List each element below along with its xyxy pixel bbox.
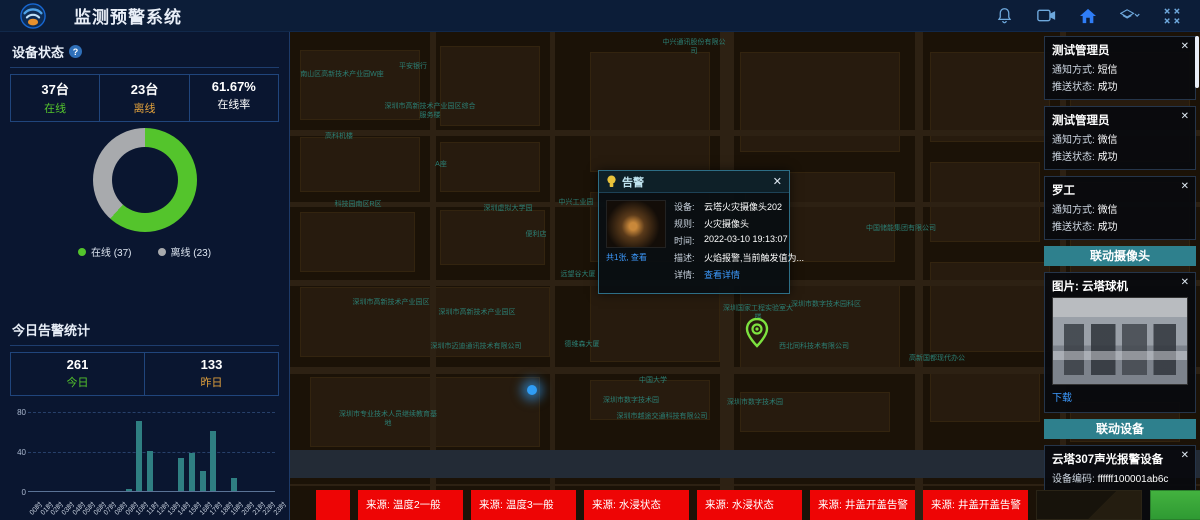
notification-recipient: 测试管理员 — [1052, 112, 1188, 128]
donut-chart — [93, 128, 197, 232]
header-icon-bar — [994, 7, 1182, 25]
map-place-label: 深圳市专业技术人员继续教育基地 — [336, 410, 440, 429]
stat-value: 23台 — [100, 79, 188, 98]
layers-icon[interactable] — [1120, 7, 1140, 25]
ticker-alert-item[interactable]: 来源: 温度2一般 — [358, 490, 463, 520]
today-alert-stats: 261今日133昨日 — [10, 352, 279, 396]
y-axis-tick: 40 — [12, 448, 26, 457]
bar — [210, 431, 216, 491]
bar — [126, 489, 132, 491]
legend-dot-icon — [78, 248, 86, 256]
close-icon[interactable]: ✕ — [1181, 450, 1189, 461]
device-donut-chart: 在线 (37)离线 (23) — [10, 128, 279, 278]
map-building — [930, 52, 1050, 142]
map-building — [590, 282, 720, 362]
stat-label: 今日 — [11, 374, 144, 390]
donut-legend: 在线 (37)离线 (23) — [10, 244, 279, 259]
alert-detail-row: 规则:火灾摄像头 — [674, 217, 804, 230]
map-building — [300, 212, 415, 272]
fullscreen-icon[interactable] — [1162, 7, 1182, 25]
donut-legend-item: 离线 (23) — [158, 244, 212, 259]
right-alert-panel: 测试管理员✕通知方式: 短信推送状态: 成功测试管理员✕通知方式: 微信推送状态… — [1044, 36, 1196, 520]
alarm-bulb-icon — [606, 175, 617, 188]
notification-card: 测试管理员✕通知方式: 微信推送状态: 成功 — [1044, 106, 1196, 170]
map-place-label: 深圳市数字技术园科区 — [788, 300, 864, 309]
map-place-label: 便利店 — [516, 230, 556, 239]
detail-label: 描述: — [674, 251, 704, 264]
stat-label: 昨日 — [145, 374, 278, 390]
map-pin-icon[interactable] — [745, 318, 769, 353]
detail-label: 设备: — [674, 200, 704, 213]
map-device-dot[interactable] — [527, 385, 537, 395]
linked-camera-header[interactable]: 联动摄像头 — [1044, 246, 1196, 266]
card-row: 通知方式: 微信 — [1052, 201, 1188, 216]
y-axis-tick: 0 — [12, 488, 26, 497]
bell-icon[interactable] — [994, 7, 1014, 25]
download-link[interactable]: 下载 — [1052, 389, 1072, 404]
stat-label: 在线 — [11, 100, 99, 116]
help-icon[interactable]: ? — [69, 45, 82, 58]
ticker-alert-item[interactable]: 来源: 井盖开盖告警 — [810, 490, 915, 520]
alert-detail-rows: 设备:云塔火灾摄像头202规则:火灾摄像头时间:2022-03-10 19:13… — [674, 200, 804, 285]
card-row: 通知方式: 短信 — [1052, 61, 1188, 76]
map-building — [930, 262, 1050, 352]
device-card-title: 云塔307声光报警设备 — [1052, 451, 1188, 467]
alert-popup: 告警 ✕ 共1张, 查看 设备:云塔火灾摄像头202规则:火灾摄像头时间:202… — [598, 170, 790, 294]
legend-dot-icon — [158, 248, 166, 256]
stat-cell: 37台在线 — [11, 75, 100, 121]
stat-cell: 133昨日 — [145, 353, 278, 395]
map-place-label: 深圳市数字技术园 — [586, 396, 676, 405]
ticker-green-thumbnail[interactable] — [1150, 490, 1200, 520]
y-axis-tick: 80 — [12, 408, 26, 417]
hourly-alert-bar-chart: 04080 00时01时02时03时04时05时06时07时08时09时10时1… — [10, 404, 279, 520]
close-icon[interactable]: ✕ — [1181, 41, 1189, 52]
device-status-stats: 37台在线23台离线61.67%在线率 — [10, 74, 279, 122]
map-place-label: 中兴工业园 — [546, 198, 606, 207]
alert-thumbnail-wrap: 共1张, 查看 — [606, 200, 666, 285]
legend-label: 在线 (37) — [91, 244, 132, 259]
stat-value: 133 — [145, 357, 278, 372]
map-place-label: 西北同科技术有限公司 — [778, 342, 850, 351]
card-row: 推送状态: 成功 — [1052, 78, 1188, 93]
thumbnail-caption-link[interactable]: 共1张, 查看 — [606, 252, 666, 263]
right-panel-scrollbar[interactable] — [1195, 36, 1199, 88]
notification-recipient: 罗工 — [1052, 182, 1188, 198]
camera-icon[interactable] — [1036, 7, 1056, 25]
map-place-label: 深圳市迈迪通讯技术有限公司 — [430, 342, 522, 351]
view-details-link[interactable]: 查看详情 — [704, 268, 740, 281]
detail-label: 规则: — [674, 217, 704, 230]
map-road — [915, 32, 923, 520]
stat-label: 在线率 — [190, 96, 278, 112]
camera-card: 图片: 云塔球机✕下载 — [1044, 272, 1196, 413]
app-logo-icon — [20, 3, 46, 29]
ticker-camera-thumbnail[interactable] — [1036, 490, 1142, 520]
map-place-label: 南山区高新技术产业园W座 — [300, 70, 384, 79]
alert-popup-title: 告警 — [622, 174, 644, 190]
map-place-label: 德维森大厦 — [552, 340, 612, 349]
detail-value: 云塔火灾摄像头202 — [704, 200, 782, 213]
ticker-alert-item[interactable]: 来源: 温度3一般 — [471, 490, 576, 520]
linked-device-header[interactable]: 联动设备 — [1044, 419, 1196, 439]
device-status-header: 设备状态 ? — [10, 38, 279, 68]
detail-value: 2022-03-10 19:13:07 — [704, 234, 788, 247]
alert-popup-header: 告警 ✕ — [599, 171, 789, 193]
map-place-label: 深圳市高新技术产业园区 — [438, 308, 516, 317]
device-status-title: 设备状态 — [12, 42, 64, 61]
bar — [231, 478, 237, 491]
map-place-label: 深圳市高新技术产业园区 — [352, 298, 430, 307]
legend-label: 离线 (23) — [171, 244, 212, 259]
alert-detail-row: 详情:查看详情 — [674, 268, 804, 281]
alert-detail-row: 描述:火焰报警,当前触发值为... — [674, 251, 804, 264]
donut-legend-item: 在线 (37) — [78, 244, 132, 259]
notification-recipient: 测试管理员 — [1052, 42, 1188, 58]
stat-value: 37台 — [11, 79, 99, 98]
detail-label: 时间: — [674, 234, 704, 247]
stat-value: 61.67% — [190, 79, 278, 94]
stat-cell: 23台离线 — [100, 75, 189, 121]
fire-snapshot-image[interactable] — [606, 200, 666, 248]
map-place-label: 高科机楼 — [314, 132, 364, 141]
map-place-label: 中国储能集团有限公司 — [866, 224, 936, 233]
map-building — [930, 372, 1040, 422]
map-place-label: 深圳市数字技术园 — [710, 398, 800, 407]
camera-snapshot-image[interactable] — [1052, 297, 1188, 385]
card-row: 通知方式: 微信 — [1052, 131, 1188, 146]
stat-cell: 61.67%在线率 — [190, 75, 278, 121]
stat-label: 离线 — [100, 100, 188, 116]
notification-card: 罗工✕通知方式: 微信推送状态: 成功 — [1044, 176, 1196, 240]
map-place-label: A座 — [426, 160, 456, 169]
map-building — [740, 52, 900, 152]
card-row: 推送状态: 成功 — [1052, 148, 1188, 163]
alert-detail-row: 时间:2022-03-10 19:13:07 — [674, 234, 804, 247]
ticker-alert-item[interactable] — [316, 490, 350, 520]
close-icon[interactable]: ✕ — [773, 175, 782, 188]
detail-value: 火灾摄像头 — [704, 217, 749, 230]
close-icon[interactable]: ✕ — [1181, 111, 1189, 122]
alert-detail-row: 设备:云塔火灾摄像头202 — [674, 200, 804, 213]
detail-label: 详情: — [674, 268, 704, 281]
ticker-alert-item[interactable]: 来源: 井盖开盖告警 — [923, 490, 1028, 520]
card-row: 设备编码: ffffff100001ab6c — [1052, 470, 1188, 485]
bar — [200, 471, 206, 491]
close-icon[interactable]: ✕ — [1181, 181, 1189, 192]
camera-card-title: 图片: 云塔球机 — [1052, 278, 1188, 294]
stat-value: 261 — [11, 357, 144, 372]
app-header: 监测预警系统 — [0, 0, 1200, 32]
close-icon[interactable]: ✕ — [1181, 277, 1189, 288]
bar — [147, 451, 153, 491]
map-building — [590, 52, 710, 172]
map-place-label: 平安银行 — [388, 62, 438, 71]
card-row: 推送状态: 成功 — [1052, 218, 1188, 233]
today-alerts-header: 今日告警统计 — [10, 316, 279, 346]
ticker-alert-item[interactable]: 来源: 水浸状态 — [584, 490, 689, 520]
bar — [178, 458, 184, 491]
notification-card: 测试管理员✕通知方式: 短信推送状态: 成功 — [1044, 36, 1196, 100]
map-place-label: 中兴通讯股份有限公司 — [662, 38, 726, 57]
map-place-label: 深圳虚拟大学园 — [468, 204, 548, 213]
map-place-label: 深圳市越途交通科技有限公司 — [616, 412, 708, 421]
bar — [189, 453, 195, 491]
home-icon[interactable] — [1078, 7, 1098, 25]
bar — [136, 421, 142, 491]
detail-value: 火焰报警,当前触发值为... — [704, 251, 804, 264]
stat-cell: 261今日 — [11, 353, 145, 395]
left-stats-panel: 设备状态 ? 37台在线23台离线61.67%在线率 在线 (37)离线 (23… — [0, 32, 290, 520]
map-place-label: 深圳市高新技术产业园区综合服务楼 — [382, 102, 478, 121]
map-place-label: 中国大学 — [628, 376, 678, 385]
map-place-label: 科技园南区R区 — [320, 200, 396, 209]
map-building — [300, 137, 420, 192]
alert-popup-body: 共1张, 查看 设备:云塔火灾摄像头202规则:火灾摄像头时间:2022-03-… — [599, 193, 789, 285]
page-title: 监测预警系统 — [74, 3, 182, 28]
today-alerts-title: 今日告警统计 — [12, 320, 90, 339]
alert-ticker: 来源: 温度2一般来源: 温度3一般来源: 水浸状态来源: 水浸状态来源: 井盖… — [316, 490, 1200, 520]
ticker-alert-item[interactable]: 来源: 水浸状态 — [697, 490, 802, 520]
map-place-label: 高新国都现代办公 — [882, 354, 992, 363]
